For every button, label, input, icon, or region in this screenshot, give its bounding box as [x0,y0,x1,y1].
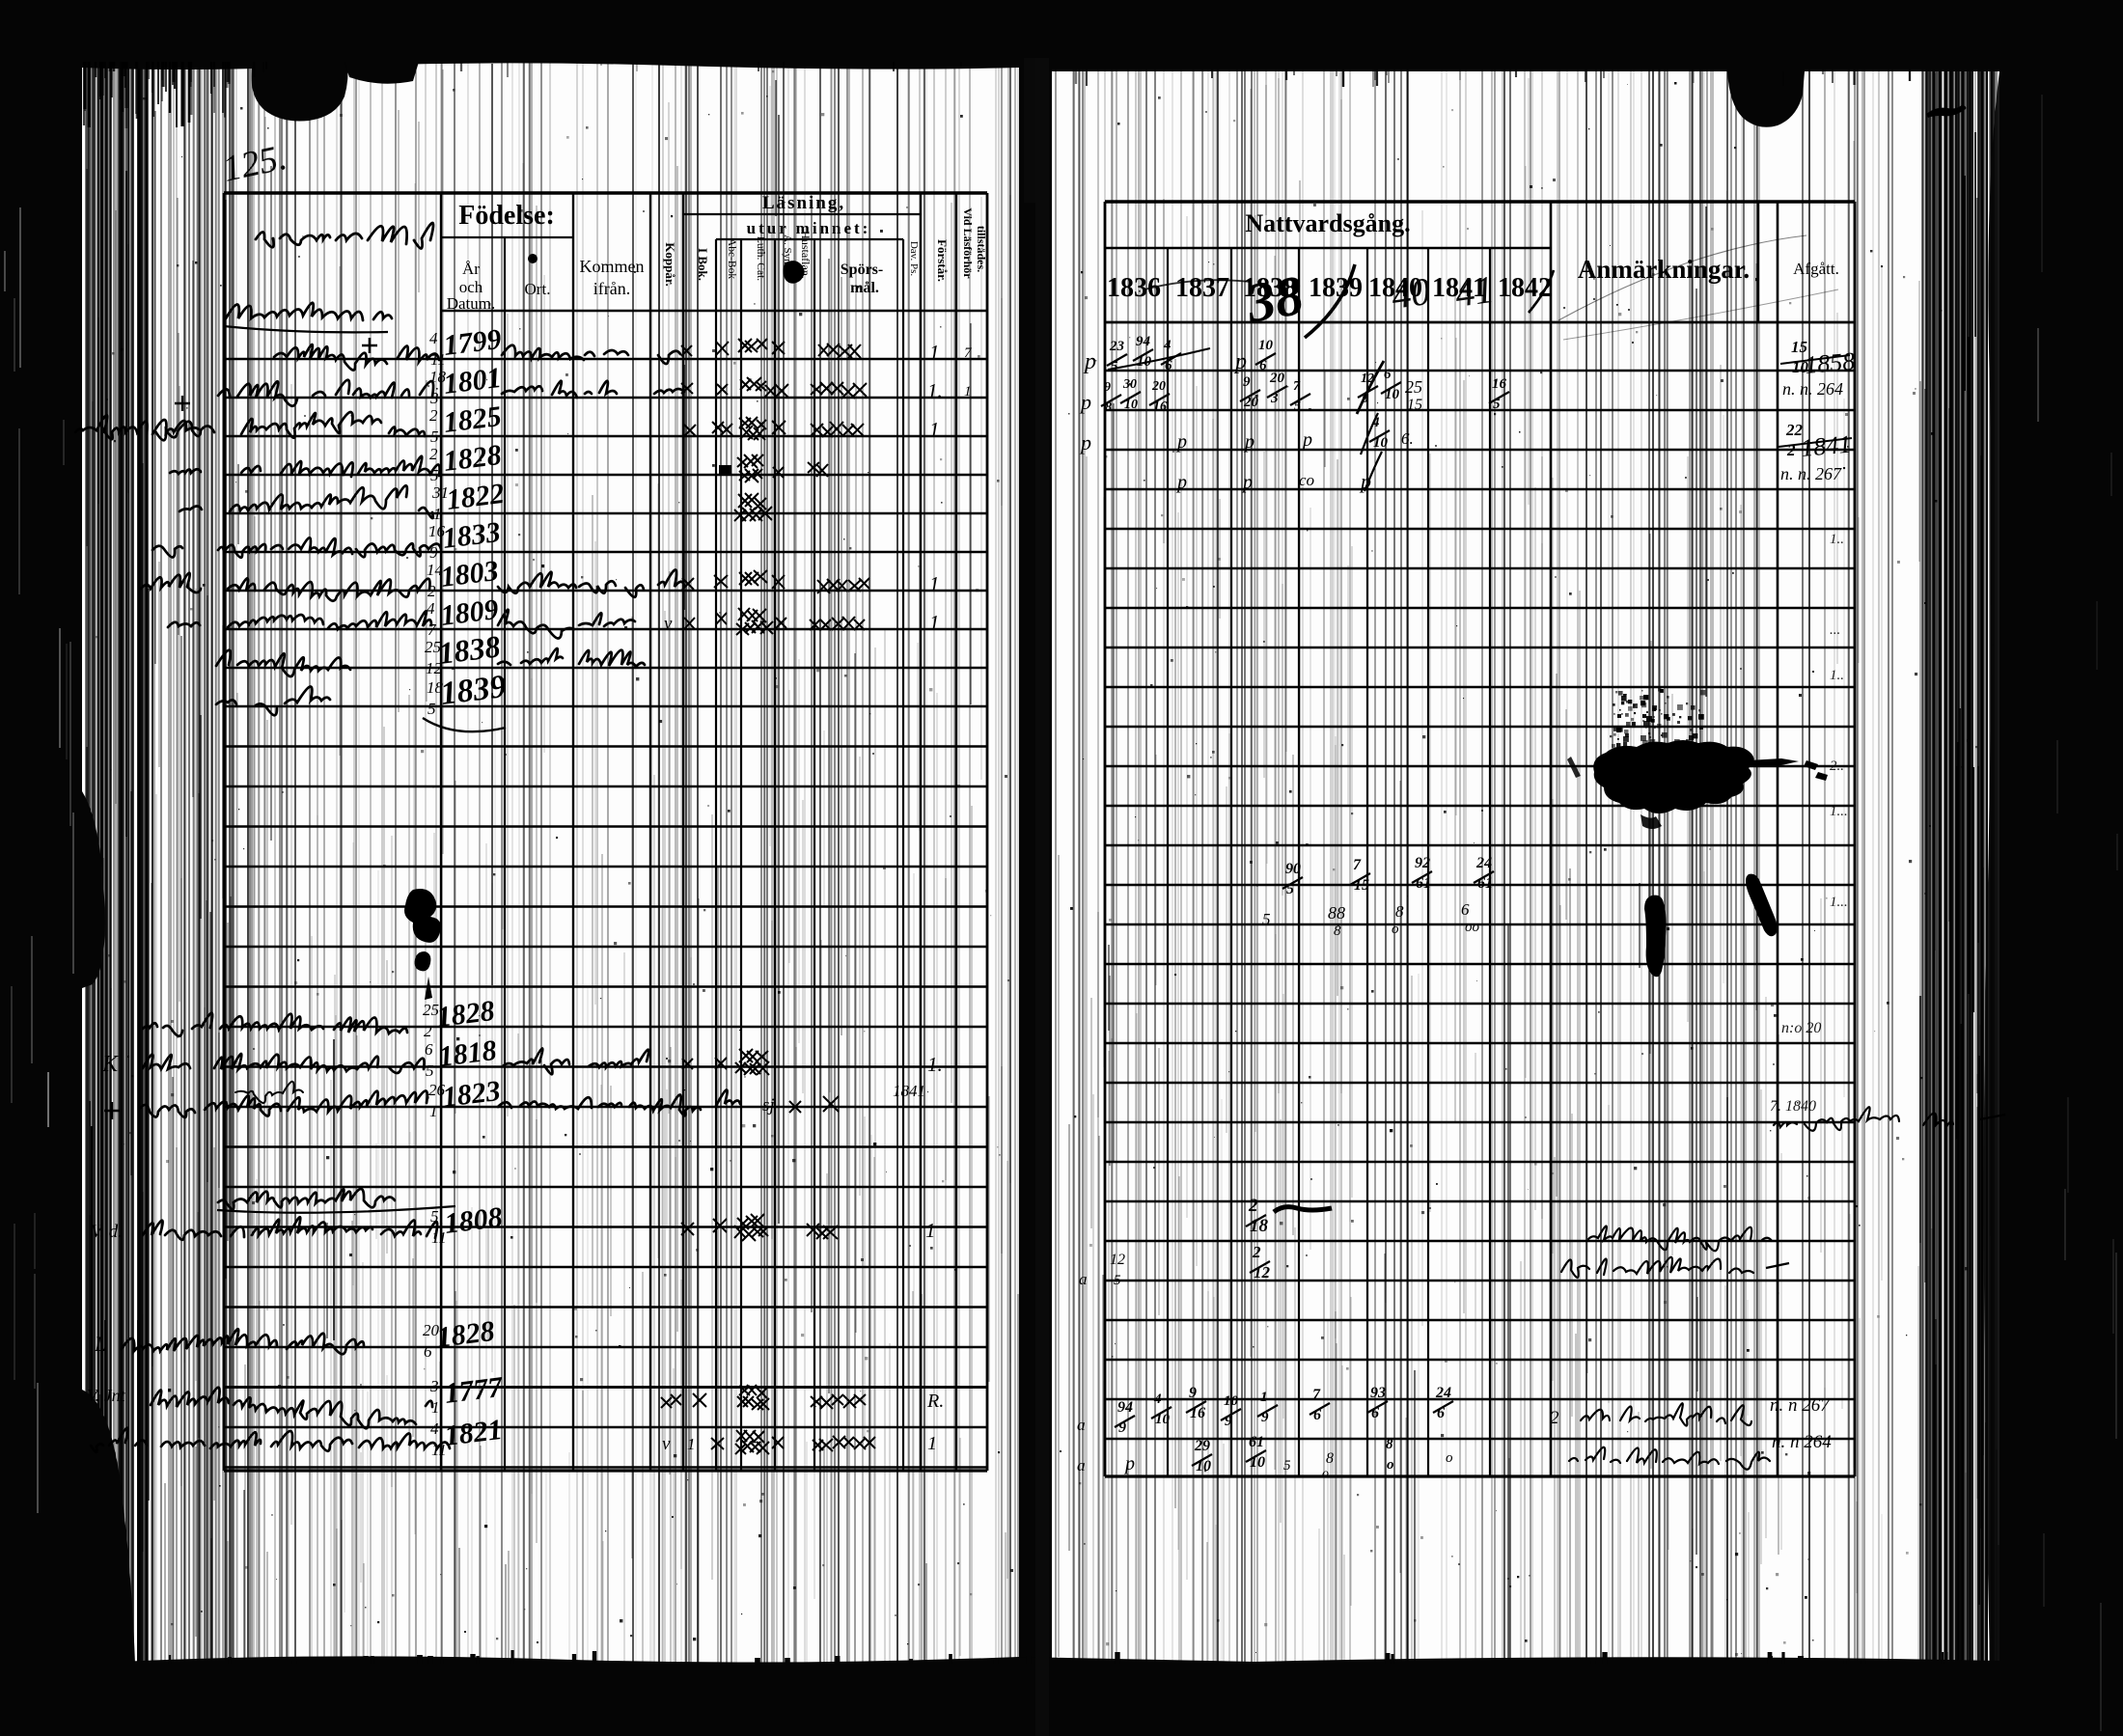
svg-text:1: 1 [929,418,940,441]
svg-text:Födelse:: Födelse: [458,201,555,231]
svg-text:5: 5 [430,427,439,446]
svg-text:1.: 1. [927,379,943,402]
svg-text:...: ... [1830,622,1840,638]
svg-text:n. n. 267: n. n. 267 [1780,464,1842,483]
svg-text:sj: sj [762,1095,775,1116]
svg-text:5: 5 [1262,910,1271,928]
svg-text:co: co [1299,471,1314,489]
svg-text:1: 1 [927,1433,937,1454]
svg-text:1..: 1.. [1830,532,1844,547]
svg-text:2: 2 [1252,1243,1261,1261]
svg-text:1841: 1841 [1800,430,1852,462]
svg-text:8: 8 [1386,1437,1393,1452]
svg-text:2: 2 [429,445,438,463]
svg-text:p: p [1175,431,1187,453]
svg-text:8: 8 [1334,923,1341,939]
svg-text:o: o [1322,1467,1329,1481]
svg-text:n. n 267: n. n 267 [1770,1395,1831,1416]
svg-text:90: 90 [1285,861,1301,877]
svg-text:3: 3 [429,389,439,407]
svg-text:1839: 1839 [1309,273,1363,303]
svg-text:p: p [1243,431,1254,453]
svg-text:oo: oo [1465,920,1480,935]
svg-text:12: 12 [1110,1252,1125,1268]
svg-text:R.: R. [926,1391,944,1412]
svg-text:92: 92 [1415,855,1430,871]
svg-text:41: 41 [1452,267,1497,316]
svg-text:n:o 20: n:o 20 [1781,1020,1821,1036]
svg-text:2: 2 [1786,441,1796,459]
svg-text:Abc-Bok: Abc-Bok [726,238,737,279]
svg-text:11: 11 [431,1441,447,1459]
svg-text:p: p [1079,390,1091,414]
svg-text:5: 5 [430,1207,439,1226]
svg-text:1: 1 [687,1435,696,1453]
svg-text:V. Jnt: V. Jnt [87,1386,126,1405]
svg-text:mål.: mål. [850,280,879,296]
svg-text:o: o [1387,1457,1394,1473]
svg-text:Kommen: Kommen [580,257,645,276]
svg-text:p: p [1175,472,1187,493]
svg-text:Nattvardsgång.: Nattvardsgång. [1245,209,1410,237]
svg-text:Vid Läsförhör: Vid Läsförhör [961,207,975,279]
svg-text:a: a [1077,1416,1086,1434]
svg-text:29: 29 [1194,1438,1210,1454]
svg-text:4: 4 [1163,338,1172,353]
svg-text:88: 88 [1328,903,1345,923]
svg-text:25: 25 [1405,377,1422,397]
svg-text:1: 1 [429,1102,438,1120]
svg-text:p: p [1079,430,1091,455]
svg-text:p: p [1241,472,1253,493]
svg-text:Luth. Cat.: Luth. Cat. [755,236,766,281]
svg-text:1858: 1858 [1804,347,1856,379]
svg-text:7. 1840: 7. 1840 [1770,1098,1816,1115]
svg-text:24: 24 [1475,855,1492,871]
svg-text:16: 16 [1190,1405,1205,1421]
svg-text:6.: 6. [1401,429,1414,448]
svg-text:1: 1 [433,505,442,523]
svg-text:5: 5 [426,1061,434,1080]
svg-text:2: 2 [427,582,436,600]
svg-text:5: 5 [430,466,439,484]
svg-text:Förstår.: Förstår. [935,239,950,282]
svg-text:n. n. 264: n. n. 264 [1782,379,1843,399]
svg-text:8: 8 [1326,1450,1334,1467]
svg-text:20: 20 [1269,371,1285,386]
svg-text:6: 6 [1461,900,1470,919]
svg-text:Spörs-: Spörs- [841,262,883,278]
svg-text:9: 9 [1104,380,1111,395]
svg-text:5: 5 [1283,1458,1291,1474]
svg-text:4: 4 [427,599,435,618]
svg-text:15: 15 [1354,877,1369,894]
svg-text:1837: 1837 [1175,273,1229,303]
svg-text:10: 10 [1196,1458,1211,1474]
svg-text:1...: 1... [1830,895,1848,910]
svg-text:5: 5 [427,700,436,718]
svg-text:Ort.: Ort. [525,280,551,298]
svg-text:6: 6 [424,1342,432,1361]
svg-text:År: År [462,260,480,278]
svg-text:L: L [94,1332,106,1356]
svg-text:1: 1 [929,572,940,595]
svg-text:4: 4 [429,329,438,347]
svg-text:15: 15 [1407,397,1422,413]
svg-text:20: 20 [1151,379,1166,394]
svg-text:v: v [662,1434,671,1454]
svg-text:Koppår.: Koppår. [663,242,677,286]
svg-text:9: 9 [429,543,438,562]
svg-text:61: 61 [1477,875,1493,892]
svg-text:4: 4 [1153,1392,1162,1407]
svg-text:V. d.: V. d. [91,1222,123,1242]
svg-text:2: 2 [1550,1408,1559,1428]
svg-text:11: 11 [431,1228,447,1247]
svg-text:o: o [1392,922,1399,937]
svg-text:94: 94 [1136,334,1151,349]
svg-text:I Bok.: I Bok. [696,248,710,281]
svg-text:n. n 264: n. n 264 [1772,1432,1832,1452]
svg-text:3: 3 [429,1377,439,1395]
svg-text:30: 30 [1122,377,1137,392]
svg-text:1: 1 [964,384,972,400]
svg-text:p: p [1233,349,1247,374]
svg-text:1: 1 [925,1219,936,1242]
svg-text:1: 1 [1260,1390,1268,1405]
svg-text:6: 6 [1384,367,1392,382]
svg-text:23: 23 [1109,339,1125,354]
svg-text:a: a [1077,1456,1086,1474]
svg-text:10: 10 [1250,1454,1265,1471]
svg-text:2: 2 [1248,1196,1258,1216]
svg-text:20: 20 [1243,395,1259,410]
svg-text:61: 61 [1249,1434,1264,1450]
svg-text:2: 2 [429,406,438,425]
svg-text:K: K [101,1052,120,1077]
svg-text:61: 61 [1416,875,1431,892]
svg-text:6: 6 [425,1040,433,1059]
svg-text:a: a [1079,1270,1088,1288]
svg-text:93: 93 [1370,1385,1386,1401]
svg-text:38: 38 [1241,263,1308,335]
svg-text:5: 5 [1114,1273,1121,1288]
svg-text:tillstädes.: tillstädes. [975,226,988,272]
svg-text:11: 11 [430,350,446,369]
svg-text:p: p [1123,1453,1135,1474]
svg-text:Afgått.: Afgått. [1793,260,1839,278]
svg-text:1842: 1842 [1498,273,1552,303]
svg-text:1.: 1. [927,1053,943,1076]
svg-text:p: p [1083,349,1096,374]
svg-text:Anmärkningar.: Anmärkningar. [1578,255,1750,284]
svg-text:o: o [1446,1450,1453,1466]
svg-text:8: 8 [1395,902,1404,921]
svg-text:94: 94 [1117,1399,1133,1416]
svg-text:40: 40 [1389,269,1433,317]
svg-text:7: 7 [1312,1387,1321,1403]
svg-text:9: 9 [1243,374,1251,390]
svg-text:4: 4 [430,1419,439,1438]
svg-text:7: 7 [1353,857,1362,873]
svg-text:2: 2 [424,1022,432,1040]
svg-text:1: 1 [929,341,940,364]
svg-text:ifrån.: ifrån. [593,279,630,298]
svg-text:10: 10 [1224,1393,1239,1409]
svg-text:16: 16 [1492,376,1507,392]
svg-text:v: v [664,614,673,634]
svg-text:2..: 2.. [1830,758,1844,774]
svg-text:1...: 1... [1830,804,1848,819]
svg-text:1841: 1841 [893,1082,925,1100]
svg-text:24: 24 [1435,1385,1451,1401]
svg-text:Dav. Ps.: Dav. Ps. [908,241,920,277]
svg-text:Datum.: Datum. [447,294,496,313]
svg-text:Läsning,: Läsning, [762,193,845,213]
svg-text:1: 1 [929,611,940,634]
svg-text:7: 7 [1293,379,1301,394]
svg-text:1..: 1.. [1830,668,1844,683]
svg-text:10: 10 [1258,338,1274,353]
svg-text:p: p [1301,429,1312,451]
svg-text:9: 9 [1189,1385,1197,1401]
svg-text:1: 1 [431,1398,440,1417]
